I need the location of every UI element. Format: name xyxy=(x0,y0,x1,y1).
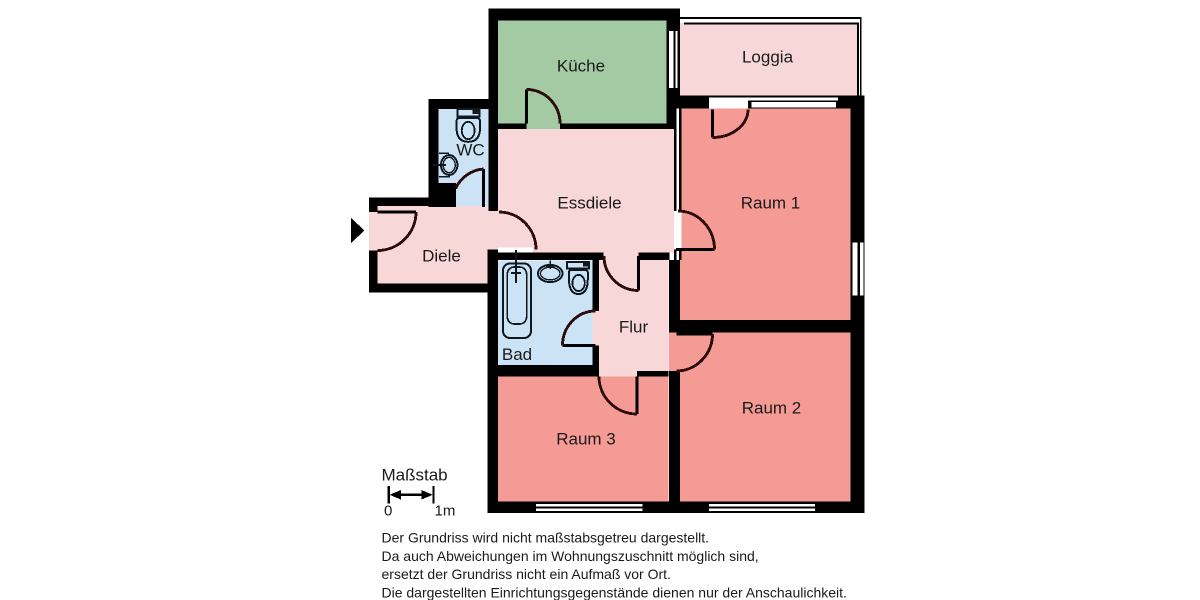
svg-text:Raum 1: Raum 1 xyxy=(741,194,801,213)
svg-text:Die dargestellten Einrichtungs: Die dargestellten Einrichtungsgegenständ… xyxy=(382,585,847,600)
svg-text:WC: WC xyxy=(456,141,484,160)
svg-text:Der Grundriss wird nicht maßst: Der Grundriss wird nicht maßstabsgetreu … xyxy=(382,530,710,546)
svg-text:Flur: Flur xyxy=(619,318,649,337)
svg-text:Essdiele: Essdiele xyxy=(557,194,621,213)
svg-text:Diele: Diele xyxy=(422,247,461,266)
svg-text:1m: 1m xyxy=(435,503,456,520)
svg-text:Bad: Bad xyxy=(502,345,532,364)
svg-text:Küche: Küche xyxy=(557,57,605,76)
svg-text:0: 0 xyxy=(384,503,392,520)
svg-text:Raum 2: Raum 2 xyxy=(742,399,802,418)
svg-text:ersetzt der Grundriss nicht ei: ersetzt der Grundriss nicht ein Aufmaß v… xyxy=(382,566,671,582)
svg-text:Da auch Abweichungen im Wohnun: Da auch Abweichungen im Wohnungszuschnit… xyxy=(382,548,759,564)
svg-text:Raum 3: Raum 3 xyxy=(556,430,616,449)
svg-text:Maßstab: Maßstab xyxy=(382,466,448,485)
svg-text:Loggia: Loggia xyxy=(742,48,794,67)
